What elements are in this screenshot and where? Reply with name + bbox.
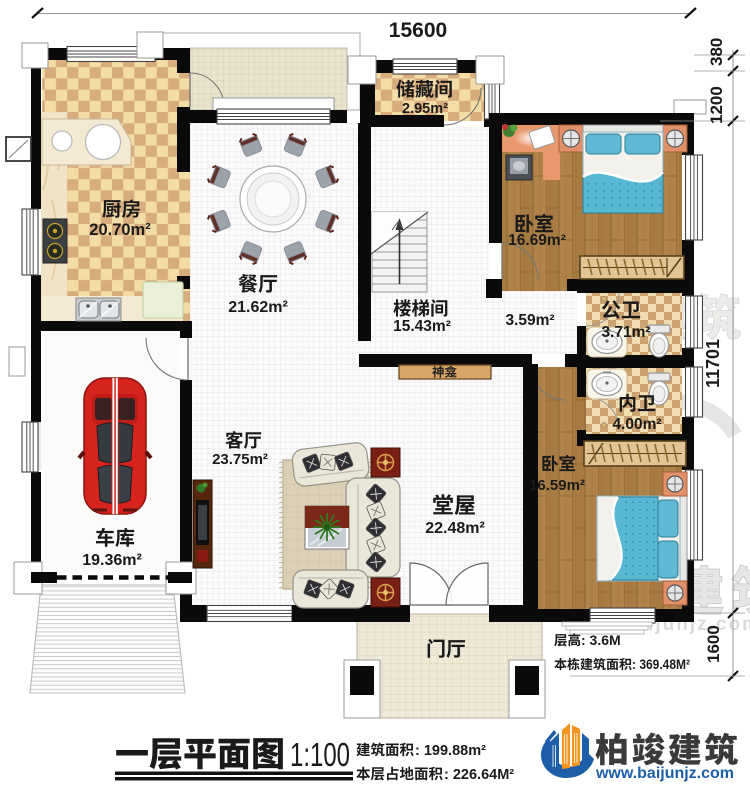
svg-text:21.62m²: 21.62m²: [228, 299, 288, 316]
svg-text:23.75m²: 23.75m²: [212, 451, 268, 468]
svg-text:3.59m²: 3.59m²: [505, 312, 554, 329]
svg-text:: 369.48M²: : 369.48M²: [632, 657, 690, 672]
svg-text:19.36m²: 19.36m²: [82, 552, 142, 569]
svg-text:: 3.6M: : 3.6M: [581, 632, 621, 648]
svg-text:1200: 1200: [707, 86, 726, 124]
svg-text:15600: 15600: [389, 19, 447, 42]
svg-text:380: 380: [707, 38, 726, 66]
svg-text:15.43m²: 15.43m²: [393, 318, 451, 335]
svg-text:www.baijunjz.com: www.baijunjz.com: [595, 765, 734, 782]
svg-text:16.59m²: 16.59m²: [529, 477, 585, 494]
svg-text:2.95m²: 2.95m²: [402, 101, 448, 117]
svg-text:1:100: 1:100: [290, 736, 350, 773]
svg-text:11701: 11701: [703, 339, 723, 388]
svg-text:16.69m²: 16.69m²: [508, 232, 566, 249]
svg-text:: 226.64M²: : 226.64M²: [444, 767, 514, 783]
svg-text:: 199.88m²: : 199.88m²: [415, 743, 486, 759]
svg-text:22.48m²: 22.48m²: [425, 520, 485, 537]
svg-text:1600: 1600: [704, 625, 723, 663]
svg-text:4.00m²: 4.00m²: [612, 416, 661, 433]
svg-text:20.70m²: 20.70m²: [89, 221, 151, 239]
svg-text:3.71m²: 3.71m²: [601, 324, 650, 341]
